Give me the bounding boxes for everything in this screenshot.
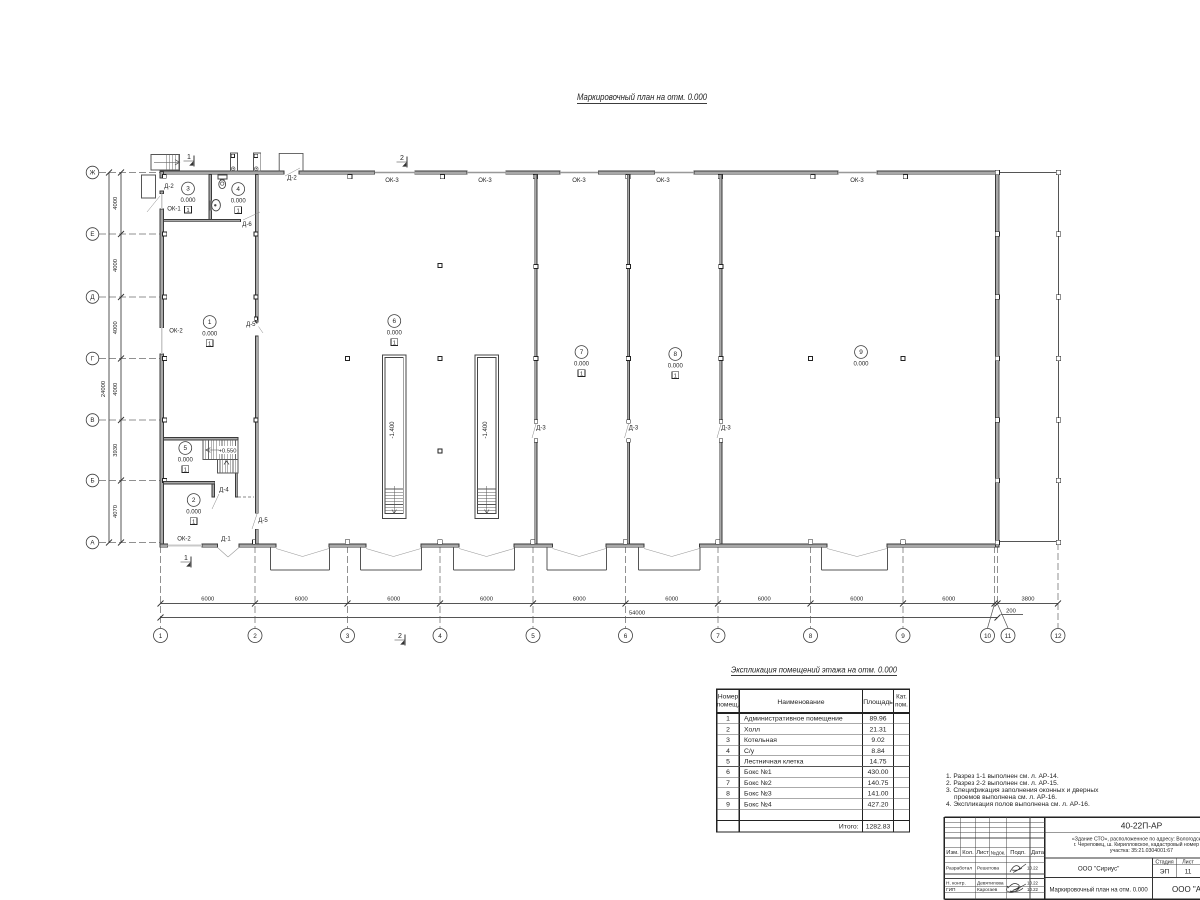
svg-text:Лист: Лист (1182, 860, 1194, 866)
svg-text:Кол.: Кол. (962, 850, 974, 856)
svg-text:Ж: Ж (90, 170, 96, 177)
svg-text:Карогаев: Карогаев (977, 887, 998, 893)
svg-text:Н. контр.: Н. контр. (946, 881, 966, 887)
svg-text:+0.550: +0.550 (219, 448, 237, 454)
svg-text:1: 1 (393, 341, 396, 347)
svg-text:Номер: Номер (718, 694, 739, 701)
svg-text:Бокс №1: Бокс №1 (744, 769, 772, 776)
svg-text:Лист: Лист (976, 850, 989, 856)
svg-text:141.00: 141.00 (868, 791, 889, 798)
svg-text:Бокс №4: Бокс №4 (744, 801, 772, 808)
svg-text:Е: Е (90, 231, 94, 238)
svg-text:3: 3 (186, 186, 190, 193)
svg-text:6: 6 (624, 633, 628, 640)
svg-text:140.75: 140.75 (868, 780, 889, 787)
svg-text:В: В (90, 417, 94, 424)
svg-text:10.22: 10.22 (1027, 887, 1039, 892)
svg-text:0.000: 0.000 (387, 330, 403, 336)
svg-text:200: 200 (1006, 609, 1016, 615)
svg-text:4: 4 (236, 186, 240, 193)
svg-text:-1.400: -1.400 (390, 421, 396, 439)
svg-text:6000: 6000 (758, 597, 771, 603)
svg-text:1: 1 (192, 520, 195, 526)
svg-text:2: 2 (192, 497, 196, 504)
svg-text:Площадь: Площадь (863, 699, 893, 706)
svg-text:ООО "Альянс: ООО "Альянс (1172, 885, 1200, 894)
svg-text:1. Разрез 1-1 выполнен см. л.: 1. Разрез 1-1 выполнен см. л. АР-14. (946, 773, 1059, 780)
svg-text:89.96: 89.96 (870, 716, 887, 723)
svg-text:10: 10 (984, 633, 992, 640)
svg-text:Бокс №3: Бокс №3 (744, 791, 772, 798)
svg-text:0.000: 0.000 (178, 457, 194, 463)
svg-text:ООО "Сириус": ООО "Сириус" (1078, 866, 1120, 873)
svg-text:14.75: 14.75 (870, 758, 887, 765)
svg-text:0.000: 0.000 (574, 361, 590, 367)
svg-text:ОК-3: ОК-3 (385, 178, 399, 184)
svg-text:пом.: пом. (895, 702, 908, 709)
svg-text:6000: 6000 (942, 597, 955, 603)
svg-text:Д-2: Д-2 (287, 176, 297, 182)
svg-text:ОК-3: ОК-3 (656, 178, 670, 184)
svg-text:6000: 6000 (295, 597, 308, 603)
svg-text:8.84: 8.84 (871, 748, 884, 755)
svg-text:Д-5: Д-5 (258, 518, 268, 524)
svg-text:Экспликация помещений этажа на: Экспликация помещений этажа на отм. 0.00… (731, 665, 897, 675)
svg-text:11: 11 (1185, 869, 1192, 876)
svg-text:Лестничная клетка: Лестничная клетка (744, 758, 804, 765)
svg-text:4: 4 (438, 633, 442, 640)
svg-text:3: 3 (346, 633, 350, 640)
svg-text:0.000: 0.000 (853, 361, 869, 367)
svg-text:Холл: Холл (744, 726, 760, 733)
svg-text:Д-2: Д-2 (164, 184, 174, 190)
svg-text:40-22П-АР: 40-22П-АР (1121, 820, 1163, 830)
svg-text:10.22: 10.22 (1027, 881, 1039, 886)
svg-text:ОК-2: ОК-2 (177, 537, 191, 543)
svg-text:427.20: 427.20 (868, 801, 889, 808)
svg-text:11: 11 (1005, 633, 1012, 640)
svg-text:6000: 6000 (850, 597, 863, 603)
svg-text:Девятилова: Девятилова (977, 881, 1004, 887)
svg-text:Д-3: Д-3 (721, 426, 731, 432)
svg-text:8: 8 (809, 633, 813, 640)
svg-text:ОК-3: ОК-3 (478, 178, 492, 184)
svg-text:0.000: 0.000 (231, 198, 247, 204)
svg-text:2: 2 (400, 155, 404, 162)
svg-text:6000: 6000 (480, 597, 493, 603)
svg-text:Бокс №2: Бокс №2 (744, 780, 772, 787)
svg-text:5: 5 (726, 758, 730, 765)
svg-text:0.000: 0.000 (180, 198, 196, 204)
svg-text:1: 1 (580, 372, 583, 378)
svg-text:1: 1 (208, 342, 211, 348)
svg-text:1: 1 (237, 209, 240, 215)
svg-text:7: 7 (580, 349, 584, 356)
svg-text:Наименование: Наименование (777, 699, 824, 706)
svg-text:7: 7 (726, 780, 730, 787)
svg-text:9: 9 (859, 349, 863, 356)
svg-text:ОК-3: ОК-3 (572, 178, 586, 184)
svg-text:8: 8 (674, 351, 678, 358)
svg-text:Итого:: Итого: (839, 824, 859, 831)
svg-text:6: 6 (393, 318, 397, 325)
svg-text:2: 2 (253, 633, 257, 640)
svg-text:21.31: 21.31 (870, 726, 887, 733)
svg-text:Д-1: Д-1 (221, 537, 231, 543)
svg-text:Д-3: Д-3 (536, 426, 546, 432)
svg-text:0.000: 0.000 (186, 509, 202, 515)
svg-text:5: 5 (531, 633, 535, 640)
svg-text:6: 6 (726, 769, 730, 776)
svg-text:1: 1 (187, 154, 191, 161)
svg-text:4000: 4000 (113, 259, 119, 272)
svg-text:Подп.: Подп. (1010, 850, 1026, 856)
svg-text:12: 12 (1054, 633, 1062, 640)
svg-text:Дата: Дата (1031, 850, 1045, 856)
svg-text:0.000: 0.000 (668, 363, 684, 369)
svg-text:1282.83: 1282.83 (866, 824, 891, 831)
svg-text:3930: 3930 (113, 444, 119, 457)
svg-text:№док.: №док. (991, 851, 1006, 857)
svg-text:7: 7 (716, 633, 720, 640)
svg-text:1: 1 (726, 716, 730, 723)
svg-text:Котельная: Котельная (744, 737, 777, 744)
svg-text:4. Экспликация полов выполнена: 4. Экспликация полов выполнена см. л. АР… (946, 801, 1090, 808)
svg-text:Д-6: Д-6 (242, 222, 252, 228)
svg-text:24000: 24000 (101, 381, 107, 397)
svg-text:4000: 4000 (113, 383, 119, 396)
svg-text:2. Разрез 2-2 выполнен см. л.: 2. Разрез 2-2 выполнен см. л. АР-15. (946, 780, 1059, 787)
svg-text:ОК-1: ОК-1 (167, 207, 181, 213)
svg-text:3: 3 (726, 737, 730, 744)
svg-text:Административное помещение: Административное помещение (744, 716, 843, 723)
svg-text:Разработал: Разработал (946, 866, 972, 872)
svg-text:1: 1 (674, 374, 677, 380)
svg-text:1: 1 (184, 468, 187, 474)
svg-text:2: 2 (398, 633, 402, 640)
svg-text:2: 2 (726, 726, 730, 733)
svg-text:участка: 35:21.0304001:67: участка: 35:21.0304001:67 (1110, 848, 1173, 854)
svg-text:4000: 4000 (113, 197, 119, 210)
svg-text:9.02: 9.02 (871, 737, 884, 744)
svg-text:Б: Б (90, 478, 94, 485)
svg-text:С/у: С/у (744, 748, 755, 755)
svg-text:Стадия: Стадия (1155, 860, 1173, 866)
svg-text:Кат.: Кат. (896, 694, 907, 701)
svg-text:3. Спецификация заполнения око: 3. Спецификация заполнения оконных и две… (946, 787, 1099, 794)
svg-text:ГИП: ГИП (946, 887, 956, 893)
svg-text:6000: 6000 (387, 597, 400, 603)
svg-text:помещ.: помещ. (717, 702, 740, 709)
svg-text:10.22: 10.22 (1027, 866, 1039, 871)
svg-text:ЭП: ЭП (1160, 869, 1170, 876)
svg-text:ОК-2: ОК-2 (169, 329, 183, 335)
svg-text:8: 8 (726, 791, 730, 798)
svg-text:6000: 6000 (665, 597, 678, 603)
svg-text:6000: 6000 (573, 597, 586, 603)
svg-text:4000: 4000 (113, 321, 119, 334)
svg-text:Д-4: Д-4 (219, 488, 229, 494)
svg-text:6000: 6000 (201, 597, 214, 603)
svg-text:1: 1 (186, 208, 189, 214)
svg-text:проемов выполнена см. л. АР-16: проемов выполнена см. л. АР-16. (954, 794, 1057, 801)
svg-text:Д-3: Д-3 (629, 426, 639, 432)
svg-text:4: 4 (726, 748, 730, 755)
svg-text:9: 9 (726, 801, 730, 808)
svg-text:430.00: 430.00 (868, 769, 889, 776)
svg-text:Маркировочный план на отм. 0.0: Маркировочный план на отм. 0.000 (577, 92, 708, 102)
svg-text:ОК-3: ОК-3 (850, 178, 864, 184)
svg-text:1: 1 (159, 633, 163, 640)
svg-text:1: 1 (184, 555, 188, 562)
svg-text:Маркировочный план на отм. 0.0: Маркировочный план на отм. 0.000 (1049, 887, 1148, 894)
svg-text:-1.400: -1.400 (483, 421, 489, 439)
svg-text:9: 9 (901, 633, 905, 640)
svg-text:0.000: 0.000 (202, 331, 218, 337)
svg-text:Решетова: Решетова (977, 866, 999, 872)
svg-text:4070: 4070 (113, 505, 119, 518)
svg-text:Изм.: Изм. (946, 850, 959, 856)
svg-text:54000: 54000 (629, 611, 645, 617)
svg-text:5: 5 (184, 445, 188, 452)
svg-text:1: 1 (208, 319, 212, 326)
svg-text:3800: 3800 (1022, 597, 1035, 603)
svg-text:Д-5*: Д-5* (246, 322, 258, 328)
